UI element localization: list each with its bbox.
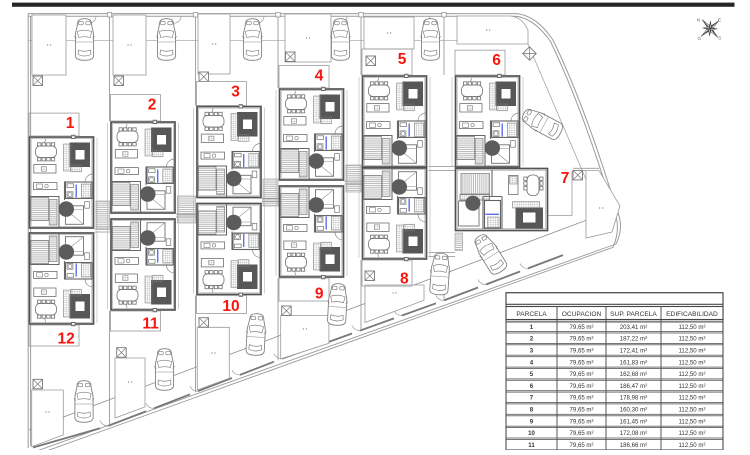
svg-text:79,65 m²: 79,65 m² (569, 418, 593, 425)
svg-text:S: S (718, 36, 721, 41)
svg-text:7: 7 (561, 170, 570, 187)
svg-text:79,65 m²: 79,65 m² (569, 324, 593, 331)
svg-text:162,68 m²: 162,68 m² (620, 371, 647, 378)
svg-text:112,50 m²: 112,50 m² (679, 418, 706, 425)
svg-text:N: N (697, 17, 700, 22)
svg-text:187,22 m²: 187,22 m² (620, 336, 647, 343)
svg-text:PARCELA: PARCELA (516, 311, 547, 318)
svg-text:161,45 m²: 161,45 m² (620, 418, 647, 425)
svg-text:112,50 m²: 112,50 m² (679, 430, 706, 437)
svg-text:1: 1 (66, 115, 75, 132)
svg-text:SUP. PARCELA: SUP. PARCELA (610, 311, 657, 318)
svg-text:160,30 m²: 160,30 m² (620, 407, 647, 414)
svg-text:79,65 m²: 79,65 m² (569, 336, 593, 343)
svg-text:EDIFICABILIDAD: EDIFICABILIDAD (666, 311, 718, 318)
svg-text:O: O (698, 36, 702, 41)
svg-text:186,66 m²: 186,66 m² (620, 442, 647, 449)
svg-text:112,50 m²: 112,50 m² (679, 395, 706, 402)
svg-text:112,50 m²: 112,50 m² (679, 336, 706, 343)
svg-text:79,65 m²: 79,65 m² (569, 407, 593, 414)
svg-text:112,50 m²: 112,50 m² (679, 359, 706, 366)
svg-text:E: E (718, 17, 721, 22)
svg-text:112,50 m²: 112,50 m² (679, 371, 706, 378)
svg-text:112,50 m²: 112,50 m² (679, 324, 706, 331)
svg-text:79,65 m²: 79,65 m² (569, 383, 593, 390)
svg-text:OCUPACION: OCUPACION (562, 311, 602, 318)
svg-text:12: 12 (57, 330, 74, 347)
svg-text:10: 10 (528, 430, 535, 437)
svg-text:3: 3 (231, 84, 240, 101)
svg-text:79,65 m²: 79,65 m² (569, 371, 593, 378)
svg-text:4: 4 (315, 68, 324, 85)
svg-text:79,65 m²: 79,65 m² (569, 359, 593, 366)
svg-text:11: 11 (142, 315, 159, 332)
svg-text:186,47 m²: 186,47 m² (620, 383, 647, 390)
svg-text:112,50 m²: 112,50 m² (679, 442, 706, 449)
svg-text:10: 10 (222, 298, 239, 315)
svg-text:172,41 m²: 172,41 m² (620, 347, 647, 354)
svg-text:2: 2 (148, 97, 157, 114)
svg-text:178,98 m²: 178,98 m² (620, 395, 647, 402)
svg-text:112,50 m²: 112,50 m² (679, 347, 706, 354)
svg-text:5: 5 (398, 51, 407, 68)
svg-text:9: 9 (315, 285, 324, 302)
svg-text:79,65 m²: 79,65 m² (569, 430, 593, 437)
svg-text:8: 8 (400, 270, 409, 287)
svg-text:11: 11 (528, 442, 535, 449)
svg-text:172,08 m²: 172,08 m² (620, 430, 647, 437)
svg-text:79,65 m²: 79,65 m² (569, 395, 593, 402)
svg-text:79,65 m²: 79,65 m² (569, 347, 593, 354)
svg-text:79,65 m²: 79,65 m² (569, 442, 593, 449)
svg-text:6: 6 (492, 52, 501, 69)
svg-text:161,83 m²: 161,83 m² (620, 359, 647, 366)
svg-text:112,50 m²: 112,50 m² (679, 407, 706, 414)
svg-text:203,41 m²: 203,41 m² (620, 324, 647, 331)
svg-text:112,50 m²: 112,50 m² (679, 383, 706, 390)
